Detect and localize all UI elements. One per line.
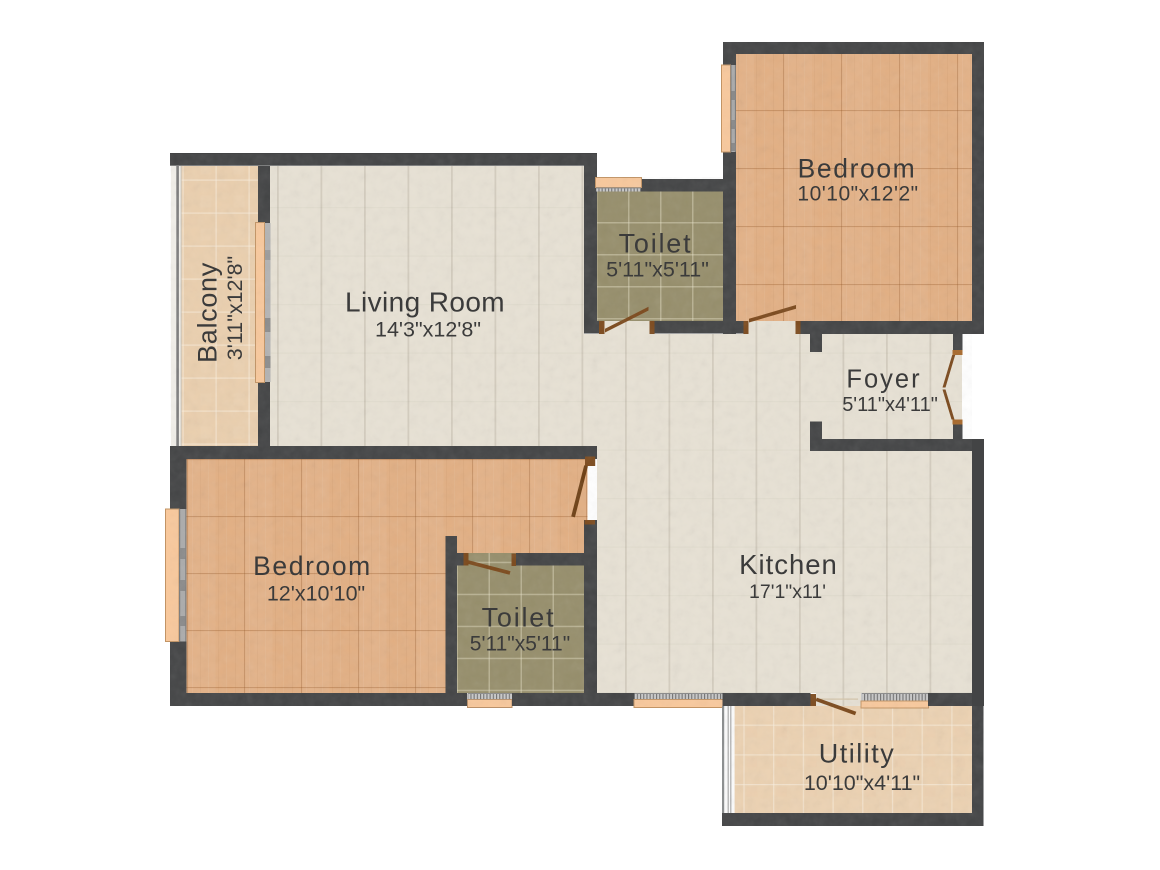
svg-text:Foyer: Foyer (846, 366, 921, 394)
svg-text:Utility: Utility (819, 739, 896, 769)
svg-text:Toilet: Toilet (619, 229, 693, 259)
svg-text:Bedroom: Bedroom (253, 551, 372, 581)
svg-text:14'3"x12'8": 14'3"x12'8" (375, 318, 481, 342)
svg-text:Balcony: Balcony (193, 262, 223, 363)
svg-text:Living Room: Living Room (345, 287, 505, 318)
svg-text:10'10"x4'11": 10'10"x4'11" (804, 771, 920, 795)
svg-text:17'1"x11': 17'1"x11' (749, 581, 826, 603)
svg-text:Bedroom: Bedroom (798, 154, 917, 184)
svg-text:Toilet: Toilet (482, 603, 556, 633)
svg-text:5'11"x5'11": 5'11"x5'11" (470, 633, 570, 656)
svg-text:5'11"x5'11": 5'11"x5'11" (606, 258, 709, 282)
svg-text:Kitchen: Kitchen (739, 549, 838, 580)
svg-text:3'11"x12'8": 3'11"x12'8" (223, 256, 247, 360)
svg-text:10'10"x12'2": 10'10"x12'2" (797, 183, 918, 206)
svg-text:5'11"x4'11": 5'11"x4'11" (842, 394, 938, 416)
svg-text:12'x10'10": 12'x10'10" (267, 582, 365, 606)
